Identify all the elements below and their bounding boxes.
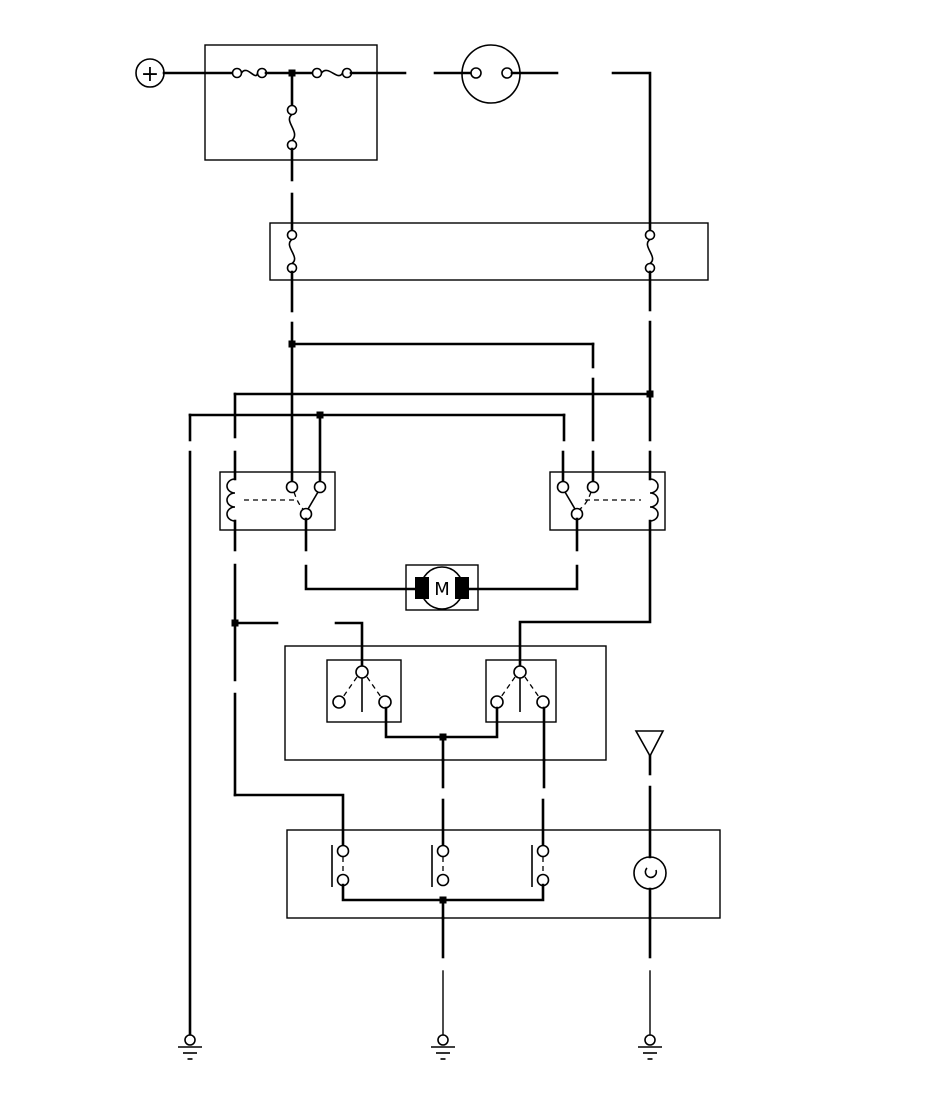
ground-left xyxy=(178,1035,202,1059)
distribution-wiring xyxy=(190,272,654,1035)
multi-switch-left xyxy=(327,660,401,722)
relay-coil xyxy=(227,479,235,521)
engine-compartment-fuse-box xyxy=(205,45,405,180)
dash-fuse-box xyxy=(270,223,708,280)
switch-panel-unit xyxy=(287,830,720,918)
ground-leads xyxy=(443,918,650,1035)
ground-right xyxy=(638,1035,662,1059)
wiring-diagram-canvas: + xyxy=(0,0,950,1108)
motor-label: M xyxy=(434,579,450,600)
bulb xyxy=(634,857,666,918)
bulb-filament xyxy=(645,868,656,877)
fuse-3 xyxy=(288,106,297,150)
panel-feed-wiring xyxy=(443,760,544,846)
ground-center xyxy=(431,1035,455,1059)
fuse-left xyxy=(288,231,297,273)
motor-brush-right xyxy=(455,577,469,599)
fuse-right xyxy=(646,231,655,273)
relay-output-wiring xyxy=(232,519,651,846)
ignition-switch xyxy=(435,45,557,103)
battery-plus-label: + xyxy=(141,62,159,87)
ignition-feed-wire xyxy=(613,73,650,231)
relay-right xyxy=(550,472,665,530)
battery-positive-terminal: + xyxy=(136,59,232,87)
antenna-symbol xyxy=(636,731,663,857)
control-switch-unit xyxy=(285,646,606,760)
relay-contact xyxy=(308,492,318,509)
motor: M xyxy=(406,565,478,610)
motor-brush-left xyxy=(415,577,429,599)
pushbutton-switch-3 xyxy=(532,845,549,887)
pushbutton-switch-1 xyxy=(332,845,349,887)
relay-coil xyxy=(650,479,658,521)
pushbutton-switch-2 xyxy=(432,845,449,887)
fuse-1 xyxy=(233,69,267,78)
wiring-diagram-page: + xyxy=(0,0,950,1108)
relay-left xyxy=(220,472,335,530)
relay-contact xyxy=(565,492,575,509)
fuse-2 xyxy=(313,69,352,78)
